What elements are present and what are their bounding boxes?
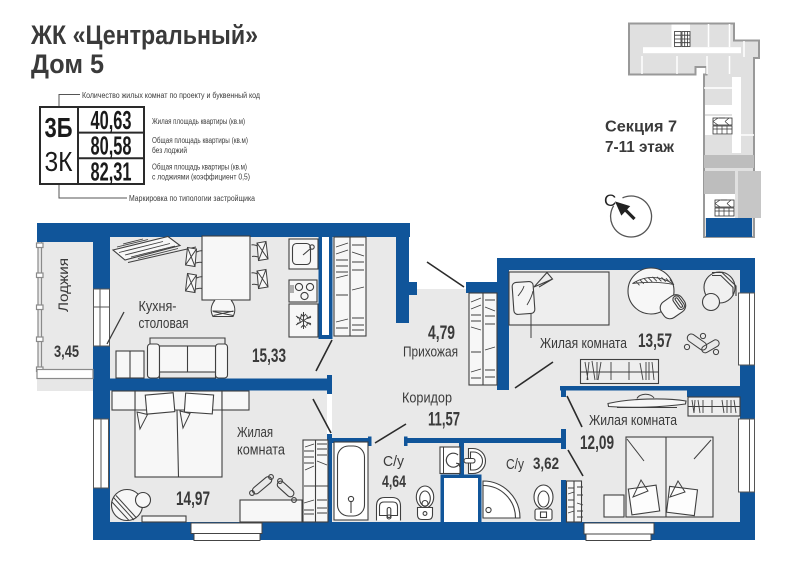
svg-text:Жилая комната: Жилая комната (589, 412, 678, 429)
svg-text:Кухня-: Кухня- (139, 298, 177, 315)
svg-text:3,62: 3,62 (533, 454, 559, 473)
svg-text:Дом 5: Дом 5 (31, 49, 104, 79)
svg-text:3К: 3К (45, 146, 74, 177)
svg-text:3Б: 3Б (45, 112, 73, 143)
svg-text:11,57: 11,57 (428, 410, 460, 431)
svg-text:без лоджий: без лоджий (152, 146, 187, 155)
svg-text:Общая площадь квартиры (кв.м): Общая площадь квартиры (кв.м) (152, 136, 248, 145)
svg-text:комната: комната (237, 442, 286, 459)
svg-text:С/у: С/у (383, 453, 404, 470)
svg-text:С: С (604, 191, 616, 210)
svg-text:4,64: 4,64 (382, 472, 406, 491)
svg-text:7-11 этаж: 7-11 этаж (605, 139, 675, 156)
svg-text:Маркировка по типологии застро: Маркировка по типологии застройщика (129, 194, 255, 203)
svg-text:82,31: 82,31 (91, 157, 132, 187)
svg-text:столовая: столовая (139, 315, 189, 332)
svg-text:Количество жилых комнат по про: Количество жилых комнат по проекту и бук… (82, 91, 260, 100)
svg-text:Лоджия: Лоджия (55, 258, 71, 312)
svg-text:Коридор: Коридор (402, 390, 452, 407)
svg-text:Жилая комната: Жилая комната (540, 335, 628, 352)
svg-text:Жилая: Жилая (237, 424, 273, 441)
svg-text:Секция 7: Секция 7 (605, 119, 677, 136)
svg-text:ЖК «Центральный»: ЖК «Центральный» (30, 20, 258, 50)
svg-text:14,97: 14,97 (176, 489, 210, 510)
svg-text:12,09: 12,09 (580, 433, 614, 454)
svg-text:с лоджиями (коэффициент 0,5): с лоджиями (коэффициент 0,5) (152, 173, 250, 182)
svg-text:Жилая площадь квартиры (кв.м): Жилая площадь квартиры (кв.м) (152, 117, 245, 126)
svg-text:Общая площадь квартиры (кв.м): Общая площадь квартиры (кв.м) (152, 163, 247, 172)
svg-text:3,45: 3,45 (54, 342, 79, 361)
svg-text:4,79: 4,79 (428, 323, 455, 344)
svg-text:13,57: 13,57 (638, 331, 672, 352)
svg-text:15,33: 15,33 (252, 346, 286, 367)
svg-text:С/у: С/у (506, 456, 524, 473)
svg-text:Прихожая: Прихожая (403, 344, 458, 361)
